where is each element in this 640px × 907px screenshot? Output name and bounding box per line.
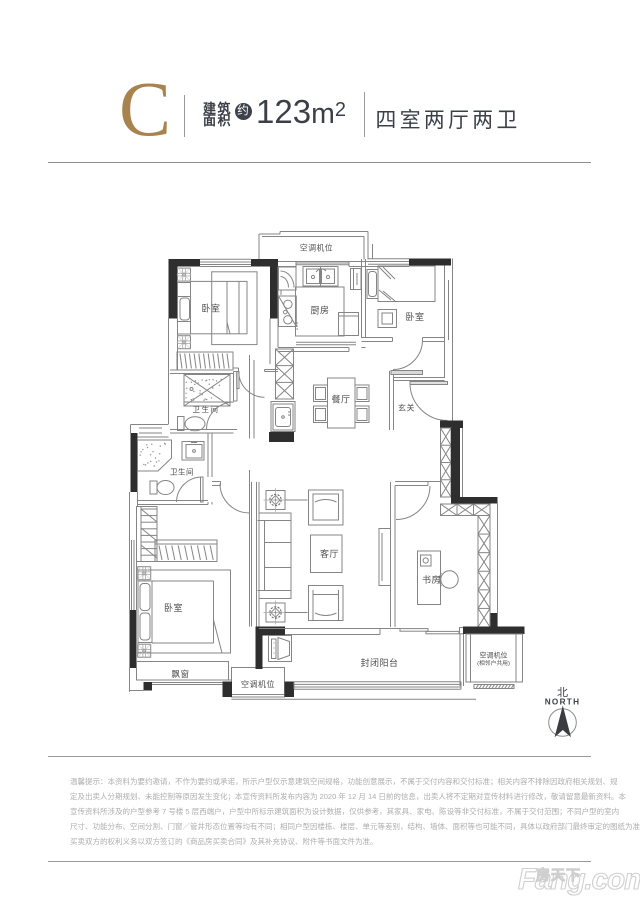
svg-text:NORTH: NORTH — [545, 698, 581, 707]
svg-text:卧室: 卧室 — [201, 303, 220, 314]
svg-text:空调机位: 空调机位 — [480, 651, 508, 660]
svg-text:餐厅: 餐厅 — [331, 394, 350, 405]
svg-text:卧室: 卧室 — [405, 311, 424, 322]
svg-text:卧室: 卧室 — [164, 602, 183, 613]
svg-text:客厅: 客厅 — [320, 548, 339, 559]
svg-text:封闭阳台: 封闭阳台 — [360, 657, 398, 668]
svg-text:厨房: 厨房 — [310, 305, 329, 316]
svg-text:空调机位: 空调机位 — [300, 243, 333, 253]
svg-text:(相邻户共用): (相邻户共用) — [477, 659, 510, 667]
svg-text:空调机位: 空调机位 — [241, 679, 275, 689]
svg-text:飘窗: 飘窗 — [171, 669, 189, 679]
svg-text:卫生间: 卫生间 — [170, 467, 194, 477]
svg-text:书房: 书房 — [422, 574, 441, 585]
svg-text:玄关: 玄关 — [398, 403, 415, 413]
